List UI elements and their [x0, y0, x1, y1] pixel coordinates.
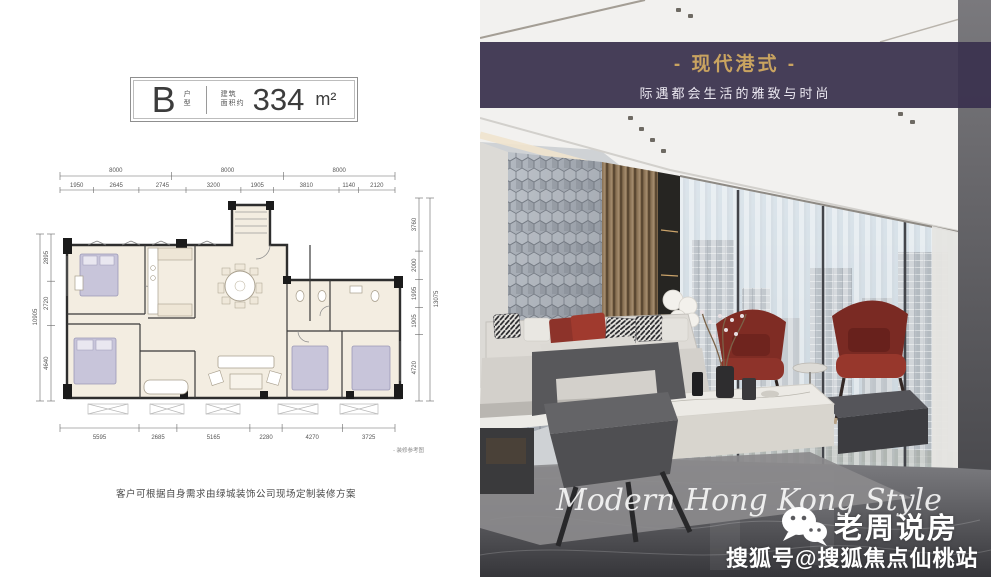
bed-right-1 [292, 346, 328, 390]
svg-text:1140: 1140 [342, 183, 356, 189]
floor-plan: 8000 8000 8000 1950 2645 2745 3200 1905 … [30, 156, 442, 468]
svg-text:2720: 2720 [44, 296, 50, 310]
area-prefix-line2: 面积约 [221, 100, 245, 109]
unit-type-char-2: 型 [184, 100, 192, 109]
svg-text:8000: 8000 [109, 168, 123, 174]
dining-table [218, 264, 262, 308]
unit-type-label: 户 型 [184, 91, 192, 109]
svg-text:3200: 3200 [207, 183, 221, 189]
banner-title: - 现代港式 - [674, 49, 797, 76]
svg-text:4270: 4270 [306, 435, 320, 441]
svg-text:2895: 2895 [44, 250, 50, 264]
area-prefix-line1: 建筑 [221, 91, 245, 100]
svg-text:2280: 2280 [259, 435, 273, 441]
svg-text:3760: 3760 [412, 217, 418, 231]
svg-text:3725: 3725 [362, 435, 376, 441]
svg-text:2000: 2000 [412, 258, 418, 272]
svg-text:8000: 8000 [221, 168, 235, 174]
plan-disclaimer: 客户可根据自身需求由绿城装饰公司现场定制装修方案 [0, 486, 472, 500]
svg-text:2645: 2645 [110, 183, 124, 189]
banner-subtitle: 际遇都会生活的雅致与时尚 [639, 83, 831, 102]
unit-letter: B [152, 82, 176, 118]
svg-text:8000: 8000 [333, 168, 347, 174]
svg-text:3810: 3810 [300, 183, 314, 189]
unit-type-char-1: 户 [184, 91, 192, 100]
area-prefix: 建筑 面积约 [221, 91, 245, 109]
sideboard [480, 428, 534, 494]
svg-text:1950: 1950 [70, 183, 84, 189]
svg-text:2685: 2685 [151, 435, 165, 441]
balcony-units [88, 404, 378, 414]
svg-text:13075: 13075 [434, 290, 440, 307]
bathtub [144, 380, 188, 394]
svg-text:4720: 4720 [412, 360, 418, 374]
svg-text:1905: 1905 [251, 183, 265, 189]
area-value: 334 [253, 84, 305, 115]
svg-text:2120: 2120 [370, 183, 384, 189]
bed-right-2 [352, 346, 390, 390]
svg-text:4640: 4640 [44, 356, 50, 370]
brand-handle: 搜狐号@搜狐焦点仙桃站 [726, 541, 978, 573]
bed-bottom-left [74, 338, 116, 384]
title-divider [206, 86, 207, 114]
area-unit: m² [315, 89, 336, 110]
curtain-column [932, 226, 958, 470]
unit-title-box: B 户 型 建筑 面积约 334 m² [130, 77, 358, 122]
svg-text:10905: 10905 [33, 308, 39, 325]
bed-master-top [80, 254, 118, 296]
svg-text:1995: 1995 [412, 286, 418, 300]
page: B 户 型 建筑 面积约 334 m² [0, 0, 991, 577]
style-banner: - 现代港式 - 际遇都会生活的雅致与时尚 [480, 42, 991, 108]
svg-text:5595: 5595 [93, 435, 107, 441]
svg-text:2745: 2745 [156, 183, 170, 189]
unit-title-inner: B 户 型 建筑 面积约 334 m² [133, 80, 355, 119]
reference-note: - 装修参考图 [393, 446, 424, 454]
svg-text:5165: 5165 [207, 435, 221, 441]
svg-text:1905: 1905 [412, 314, 418, 328]
